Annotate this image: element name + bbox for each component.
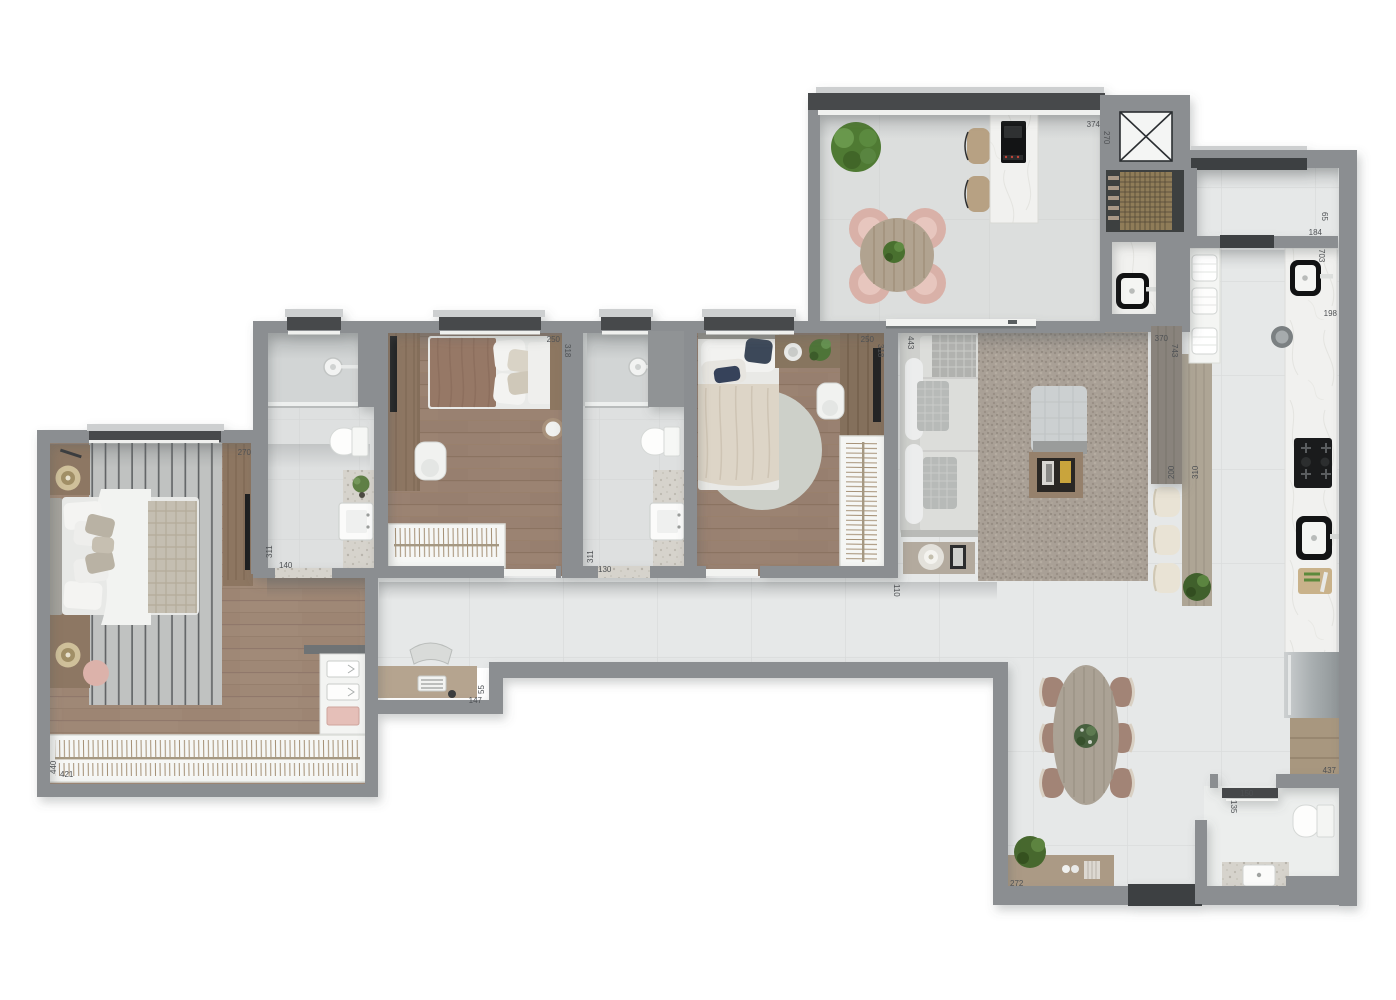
svg-text:198: 198 [1324, 309, 1338, 318]
svg-text:318: 318 [563, 344, 572, 358]
svg-text:421: 421 [60, 770, 74, 779]
svg-text:130: 130 [598, 565, 612, 574]
svg-text:184: 184 [1309, 228, 1323, 237]
svg-text:65: 65 [1320, 212, 1329, 221]
svg-text:703: 703 [1317, 249, 1326, 263]
svg-text:318: 318 [876, 344, 885, 358]
svg-text:140: 140 [279, 561, 293, 570]
svg-text:437: 437 [1323, 766, 1337, 775]
svg-text:200: 200 [1167, 465, 1176, 479]
svg-text:250: 250 [547, 335, 561, 344]
svg-text:310: 310 [1191, 465, 1200, 479]
svg-text:270: 270 [1102, 131, 1111, 145]
svg-text:150: 150 [1240, 789, 1254, 798]
svg-text:55: 55 [477, 685, 486, 694]
svg-text:110: 110 [892, 584, 901, 597]
svg-text:374: 374 [1087, 120, 1101, 129]
svg-text:272: 272 [1010, 879, 1024, 888]
svg-text:743: 743 [1170, 344, 1179, 358]
svg-text:147: 147 [469, 696, 483, 705]
svg-text:311: 311 [265, 545, 274, 558]
svg-text:270: 270 [238, 448, 252, 457]
svg-text:440: 440 [49, 760, 58, 774]
svg-text:135: 135 [1229, 800, 1238, 814]
svg-text:443: 443 [906, 336, 915, 350]
svg-text:311: 311 [586, 550, 595, 563]
svg-text:250: 250 [861, 335, 875, 344]
svg-text:370: 370 [1155, 334, 1169, 343]
